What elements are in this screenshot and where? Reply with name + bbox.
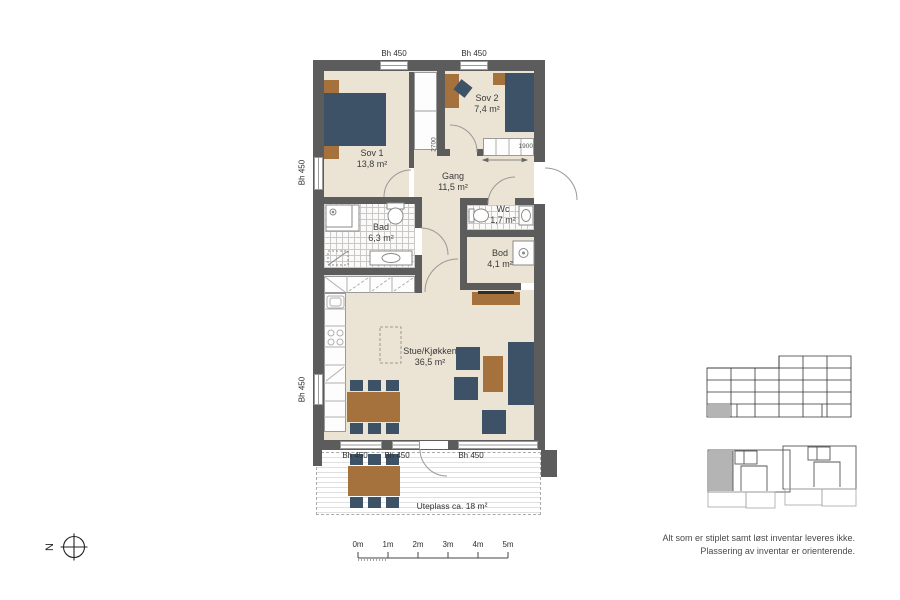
scale-label-1m: 1m [376, 540, 400, 549]
room-name: Stue/Kjøkken [380, 346, 480, 357]
sill-label-top-2: Bh 450 [444, 49, 504, 58]
key-plan-terraces [708, 489, 856, 508]
room-label-stue: Stue/Kjøkken 36,5 m² [380, 346, 480, 367]
bed-sov1 [324, 93, 386, 146]
wall-bod-bottom [467, 283, 521, 290]
window-top-1 [380, 61, 408, 70]
kitchen-counter-left-column [324, 293, 346, 432]
room-name: Sov 2 [447, 93, 527, 104]
sofa [508, 342, 534, 405]
window-bottom-2 [392, 441, 420, 449]
dining-chair [350, 423, 363, 434]
window-left-2 [314, 374, 323, 405]
floor-plan-sheet: Sov 1 13,8 m² Sov 2 7,4 m² Gang 11,5 m² … [0, 0, 900, 600]
room-label-bod: Bod 4,1 m² [460, 248, 540, 269]
dimension-2700: 2700 [431, 128, 438, 162]
dining-chair [350, 380, 363, 391]
wall-top [313, 60, 545, 71]
dining-table [347, 392, 400, 422]
north-compass-icon [61, 534, 88, 561]
scale-label-3m: 3m [436, 540, 460, 549]
north-letter: N [44, 540, 58, 554]
disclaimer-line-2: Plassering av inventar er orienterende. [505, 545, 855, 558]
room-name: Bad [341, 222, 421, 233]
disclaimer-note: Alt som er stiplet samt løst inventar le… [505, 532, 855, 558]
key-plan-floor [708, 446, 856, 492]
sill-label-left-1: Bh 450 [298, 143, 307, 203]
sill-label-bottom-3: Bh 450 [441, 451, 501, 460]
room-label-sov1: Sov 1 13,8 m² [332, 148, 412, 169]
nightstand-sov1-top [324, 80, 339, 93]
dining-chair [386, 423, 399, 434]
scale-bar [358, 552, 508, 560]
scale-label-4m: 4m [466, 540, 490, 549]
room-area: 13,8 m² [332, 159, 412, 170]
key-plan-building-section [707, 356, 851, 417]
room-label-gang: Gang 11,5 m² [413, 171, 493, 192]
room-area: 7,4 m² [447, 104, 527, 115]
armchair-2 [454, 377, 478, 400]
disclaimer-line-1: Alt som er stiplet samt løst inventar le… [505, 532, 855, 545]
terrace-table [348, 466, 400, 496]
kitchen-counter-top-row [324, 276, 415, 293]
dining-chair [386, 380, 399, 391]
coffee-table [483, 356, 503, 392]
wall-wc-bottom [467, 230, 534, 237]
window-bottom-1 [340, 441, 382, 449]
wall-sov2-bottom-a [437, 149, 450, 156]
dining-chair [368, 423, 381, 434]
sill-label-top-1: Bh 450 [364, 49, 424, 58]
dining-chair [368, 380, 381, 391]
wall-stub-terrace-left [313, 450, 322, 466]
nightstand-sov2 [493, 73, 505, 85]
dimension-1900: 1900 [506, 143, 533, 150]
tv-screen [478, 291, 514, 294]
terrace-door-opening [420, 441, 448, 449]
scale-label-2m: 2m [406, 540, 430, 549]
room-name: Wc [473, 204, 533, 215]
room-area: 6,3 m² [341, 233, 421, 244]
room-label-sov2: Sov 2 7,4 m² [447, 93, 527, 114]
sill-label-left-2: Bh 450 [298, 360, 307, 420]
window-bottom-3 [458, 441, 538, 449]
room-name: Gang [413, 171, 493, 182]
wall-sov2-left [437, 60, 445, 156]
wall-wc-bod-left [460, 198, 467, 290]
scale-label-0m: 0m [346, 540, 370, 549]
room-name: Sov 1 [332, 148, 412, 159]
room-label-wc: Wc 1,7 m² [473, 204, 533, 225]
room-area: 36,5 m² [380, 357, 480, 368]
wall-bad-bottom [324, 268, 422, 275]
room-name: Bod [460, 248, 540, 259]
room-label-bad: Bad 6,3 m² [341, 222, 421, 243]
entry-door-opening [534, 162, 545, 204]
wall-stub-terrace-right [541, 450, 557, 477]
sill-label-bottom-2: Bh 450 [367, 451, 427, 460]
wall-sov1-bottom [313, 197, 422, 204]
room-area: 4,1 m² [460, 259, 540, 270]
door-opening-bod [521, 283, 534, 290]
terrace-label: Uteplass ca. 18 m² [352, 501, 552, 511]
pouf [482, 410, 506, 434]
room-area: 1,7 m² [473, 215, 533, 226]
window-left-1 [314, 157, 323, 190]
room-area: 11,5 m² [413, 182, 493, 193]
window-top-2 [460, 61, 488, 70]
